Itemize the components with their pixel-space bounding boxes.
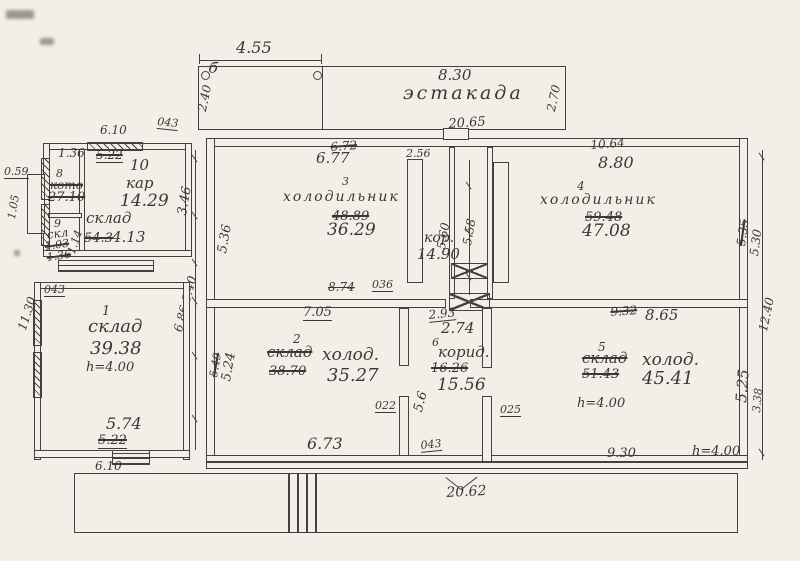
dim-label: 8.65	[645, 308, 678, 323]
room-number: 10	[130, 158, 149, 173]
dim-label: 4.55	[236, 40, 272, 56]
room-name: кор.	[424, 231, 454, 245]
dim-label: 8.74	[328, 281, 355, 293]
room-area-old: 38.70	[269, 365, 306, 378]
dim-label: 6.10	[95, 460, 122, 472]
platform-outline	[74, 473, 738, 533]
dim-label: 2.56	[406, 148, 431, 159]
room-area-old: 16.26	[431, 362, 468, 375]
dim-label: 6.77	[316, 151, 349, 166]
wall-thickness: 022	[375, 400, 396, 413]
wall-thickness: 025	[500, 404, 521, 417]
dim-label: 5.58	[461, 218, 477, 246]
dim-label: 5.74	[106, 416, 142, 432]
corridor-wall	[482, 396, 492, 462]
corridor-wall	[399, 396, 409, 456]
dim-end	[321, 54, 322, 64]
dim-label: 6.73	[307, 436, 343, 452]
dim-label: 3.38	[751, 388, 764, 413]
dim-label: 5.25	[734, 369, 752, 404]
room-name: кар	[126, 176, 154, 191]
door-symbol	[451, 263, 488, 279]
room-height: h=4.00	[577, 397, 625, 410]
room-name: холодильник	[283, 190, 400, 204]
dim-label: 12.40	[757, 296, 776, 332]
wall-mid	[470, 299, 748, 308]
steps	[58, 260, 154, 272]
dim-label: 6.10	[100, 124, 127, 136]
room-name-old: склад	[582, 351, 627, 366]
dim-label: 10.64	[590, 137, 625, 151]
room-area: 15.56	[437, 377, 486, 394]
ramp-divider	[322, 66, 323, 130]
corridor-wall	[399, 308, 409, 366]
dim-old: 5.22	[98, 434, 127, 449]
scan-smudge	[6, 10, 34, 19]
dim-label: 1.05	[6, 194, 21, 220]
wall-thickness: 043	[420, 438, 442, 453]
dim-label: 8.30	[438, 68, 471, 83]
room-area-old: 51.43	[582, 368, 619, 381]
room-area: 47.08	[582, 223, 631, 240]
dim-label: 7.05	[303, 306, 332, 321]
room-name: корид.	[438, 345, 490, 360]
room-area: 39.38	[90, 340, 142, 358]
room-name-old: склад	[267, 345, 312, 360]
room-area-old: 27.10	[48, 191, 85, 204]
room-name: холод.	[642, 352, 699, 369]
dim-end	[199, 54, 200, 64]
wall-bottom	[206, 455, 748, 462]
dim-label: 9.30	[607, 447, 636, 460]
room-name: холодильник	[540, 193, 657, 207]
room-area: 4.13	[112, 230, 145, 245]
wall-thickness: 043	[44, 284, 65, 297]
dim-label: 2.74	[441, 321, 474, 336]
room-area: 14.29	[120, 193, 169, 210]
dim-label: 0.59	[4, 166, 29, 179]
room-height: h=4.00	[692, 445, 740, 458]
scan-smudge	[40, 38, 54, 45]
room-name: холод.	[322, 347, 379, 364]
window	[33, 352, 42, 398]
room-number: 3	[342, 176, 349, 187]
platform-steps	[288, 474, 318, 532]
dim-label: 5.24	[220, 351, 238, 382]
dim-label: 1.36	[58, 147, 85, 159]
room-name: склад	[88, 318, 142, 336]
room-area: 35.27	[327, 367, 379, 385]
room-area: 45.41	[642, 370, 694, 388]
dim-label: 20.62	[446, 484, 487, 500]
room-number: 4	[577, 180, 585, 192]
dim-label: 20.65	[448, 115, 486, 131]
room-name: склад	[86, 211, 131, 226]
wall-bottom	[206, 462, 748, 469]
pilaster	[493, 162, 509, 283]
wall-thickness: 043	[157, 116, 179, 131]
room1-wall	[183, 282, 190, 460]
wall-top	[206, 138, 748, 147]
ramp-label: эстакада	[403, 84, 524, 103]
dim-label: 8.80	[598, 155, 634, 171]
dim-label: 5.6	[412, 390, 430, 413]
ramp-bolt	[313, 71, 322, 80]
room-area: 14.90	[417, 247, 460, 262]
scan-smudge	[14, 250, 20, 256]
room-area-old: 54.3	[84, 232, 113, 245]
room-height: h=4.00	[86, 361, 134, 374]
room-area: 36.29	[327, 222, 376, 239]
floor-plan-scan: 4.55 б 2.40 8.30 эстакада 2.70 20.65 2.5…	[0, 0, 800, 561]
dim-old: 9.32	[610, 304, 637, 318]
wall-thickness: 036	[372, 279, 393, 292]
dim-label: 5.36	[216, 223, 234, 254]
dim-old: 8.74	[328, 280, 355, 294]
pilaster	[407, 159, 423, 283]
dim-old: 5.22	[96, 149, 123, 163]
